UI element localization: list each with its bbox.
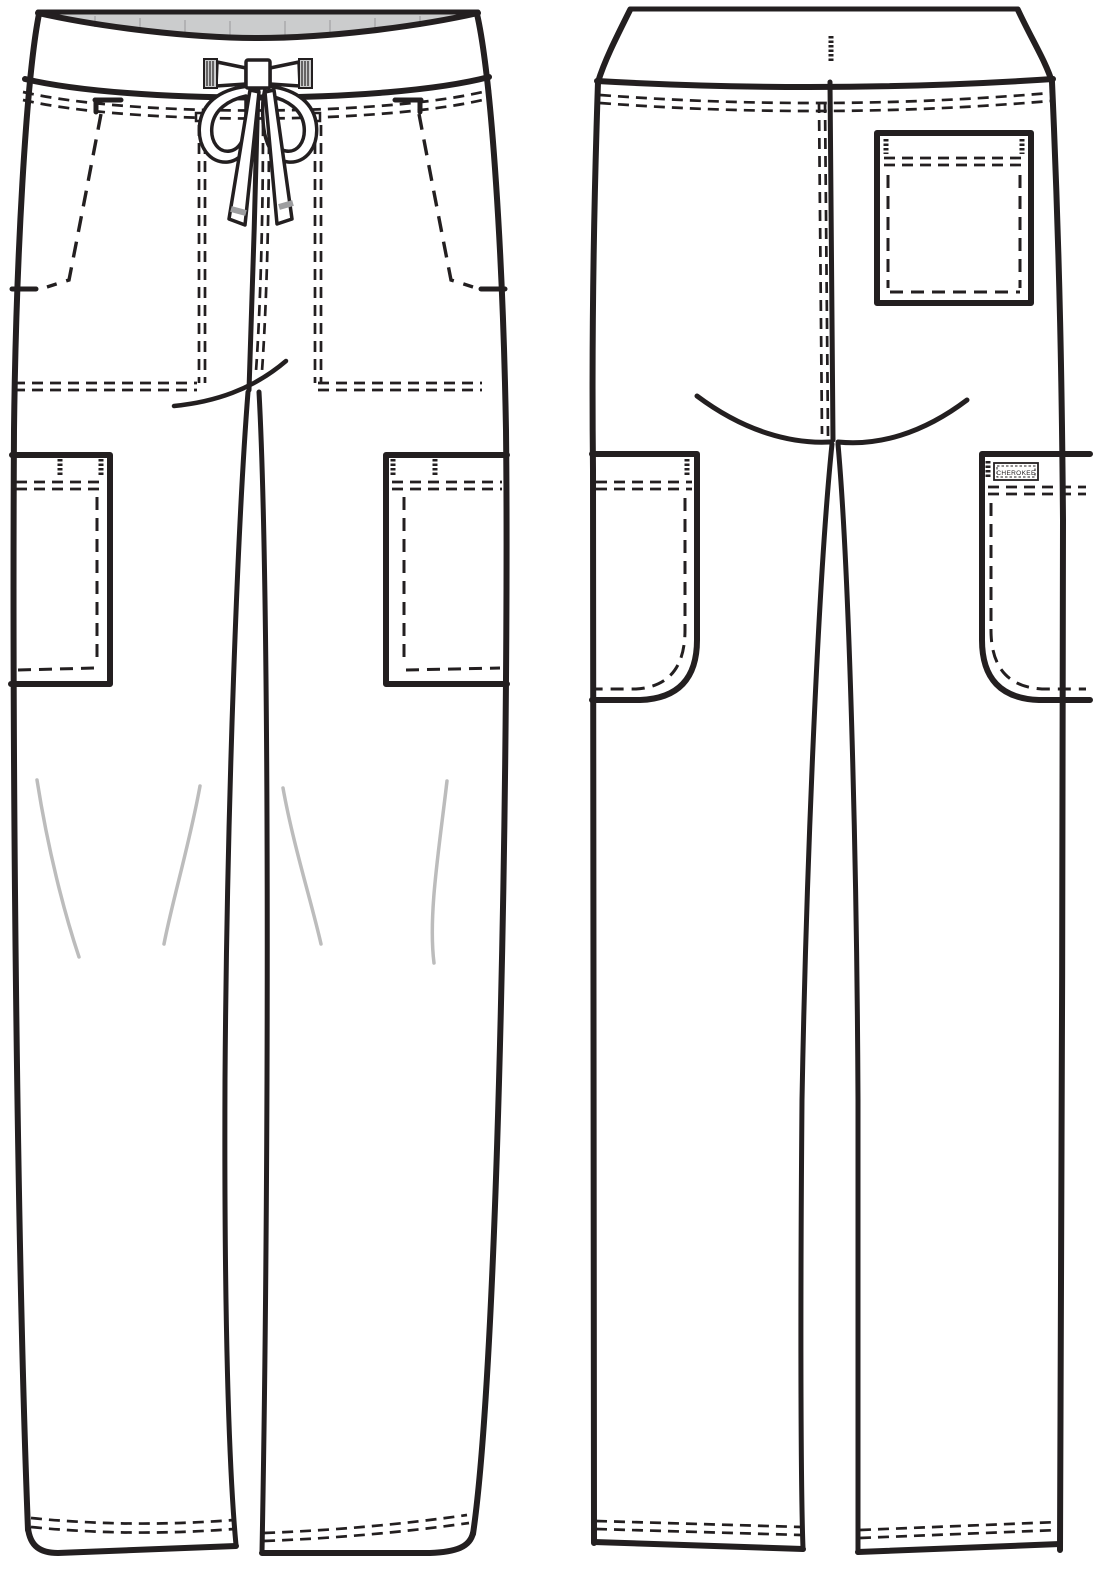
- technical-flat-sketch: CHEROKEE: [0, 0, 1100, 1575]
- left-side-seam: [593, 10, 630, 1543]
- knee-crease-line: [37, 780, 79, 957]
- knee-crease-line: [432, 781, 447, 963]
- right-side-seam: [1018, 10, 1063, 1550]
- cargo-pocket-outline: [982, 454, 1090, 700]
- crotch-shadow-line: [174, 361, 286, 406]
- front-left-cargo-pocket: [11, 455, 110, 684]
- left-hem-stitch: [31, 1518, 234, 1524]
- front-view: [11, 12, 507, 1553]
- front-right-cargo-pocket: [386, 455, 507, 684]
- waistband-bottom-seam: [597, 79, 1053, 87]
- right-hem-edge: [858, 1544, 1060, 1552]
- center-back-stitch: [825, 102, 828, 436]
- center-back-stitch: [819, 102, 822, 434]
- left-inseam: [225, 392, 248, 1545]
- right-side-seam: [473, 14, 507, 1534]
- drawstring-right-end: [270, 62, 300, 86]
- center-back-seam: [830, 82, 833, 440]
- drawstring-right-tail-band: [279, 203, 293, 207]
- cargo-pocket-edge-stitch: [596, 498, 685, 689]
- scrub-pants-flat-drawing: CHEROKEE: [0, 0, 1100, 1575]
- right-seat-curve: [838, 400, 967, 443]
- right-hem-edge: [262, 1533, 473, 1553]
- right-hem-stitch: [264, 1523, 469, 1541]
- right-hem-stitch: [860, 1530, 1058, 1538]
- left-pocket-opening-stitch: [47, 114, 101, 287]
- knee-crease-line: [164, 786, 200, 944]
- back-view: CHEROKEE: [592, 9, 1090, 1552]
- left-hem-stitch: [31, 1527, 234, 1533]
- left-side-seam: [14, 14, 39, 1530]
- cargo-pocket-edge-stitch: [991, 503, 1086, 689]
- right-hem-stitch: [264, 1515, 467, 1533]
- left-hem-stitch: [596, 1521, 801, 1527]
- knee-crease-line: [283, 788, 321, 944]
- right-inseam: [259, 392, 267, 1552]
- cargo-pocket-edge-stitch: [18, 668, 95, 670]
- right-hem-stitch: [860, 1522, 1058, 1530]
- cargo-pocket-edge-stitch: [406, 668, 500, 670]
- left-hem-edge: [28, 1528, 236, 1553]
- cargo-pocket-outline: [592, 454, 697, 700]
- drawstring-left-tail-band: [231, 209, 246, 213]
- back-patch-pocket: [877, 133, 1031, 303]
- back-right-cargo-pocket: CHEROKEE: [982, 454, 1090, 700]
- drawstring-left-end: [216, 62, 246, 86]
- brand-label: CHEROKEE: [996, 470, 1036, 477]
- right-pocket-opening-stitch: [419, 114, 473, 287]
- left-inseam: [801, 444, 832, 1548]
- left-hem-stitch: [596, 1529, 801, 1535]
- patch-pocket-outline: [877, 133, 1031, 303]
- waist-stitch-row: [600, 93, 1050, 103]
- back-left-cargo-pocket: [592, 454, 697, 700]
- drawstring-knot: [246, 60, 270, 88]
- left-seat-curve: [697, 396, 830, 442]
- right-inseam: [838, 444, 858, 1552]
- left-hem-edge: [594, 1542, 803, 1549]
